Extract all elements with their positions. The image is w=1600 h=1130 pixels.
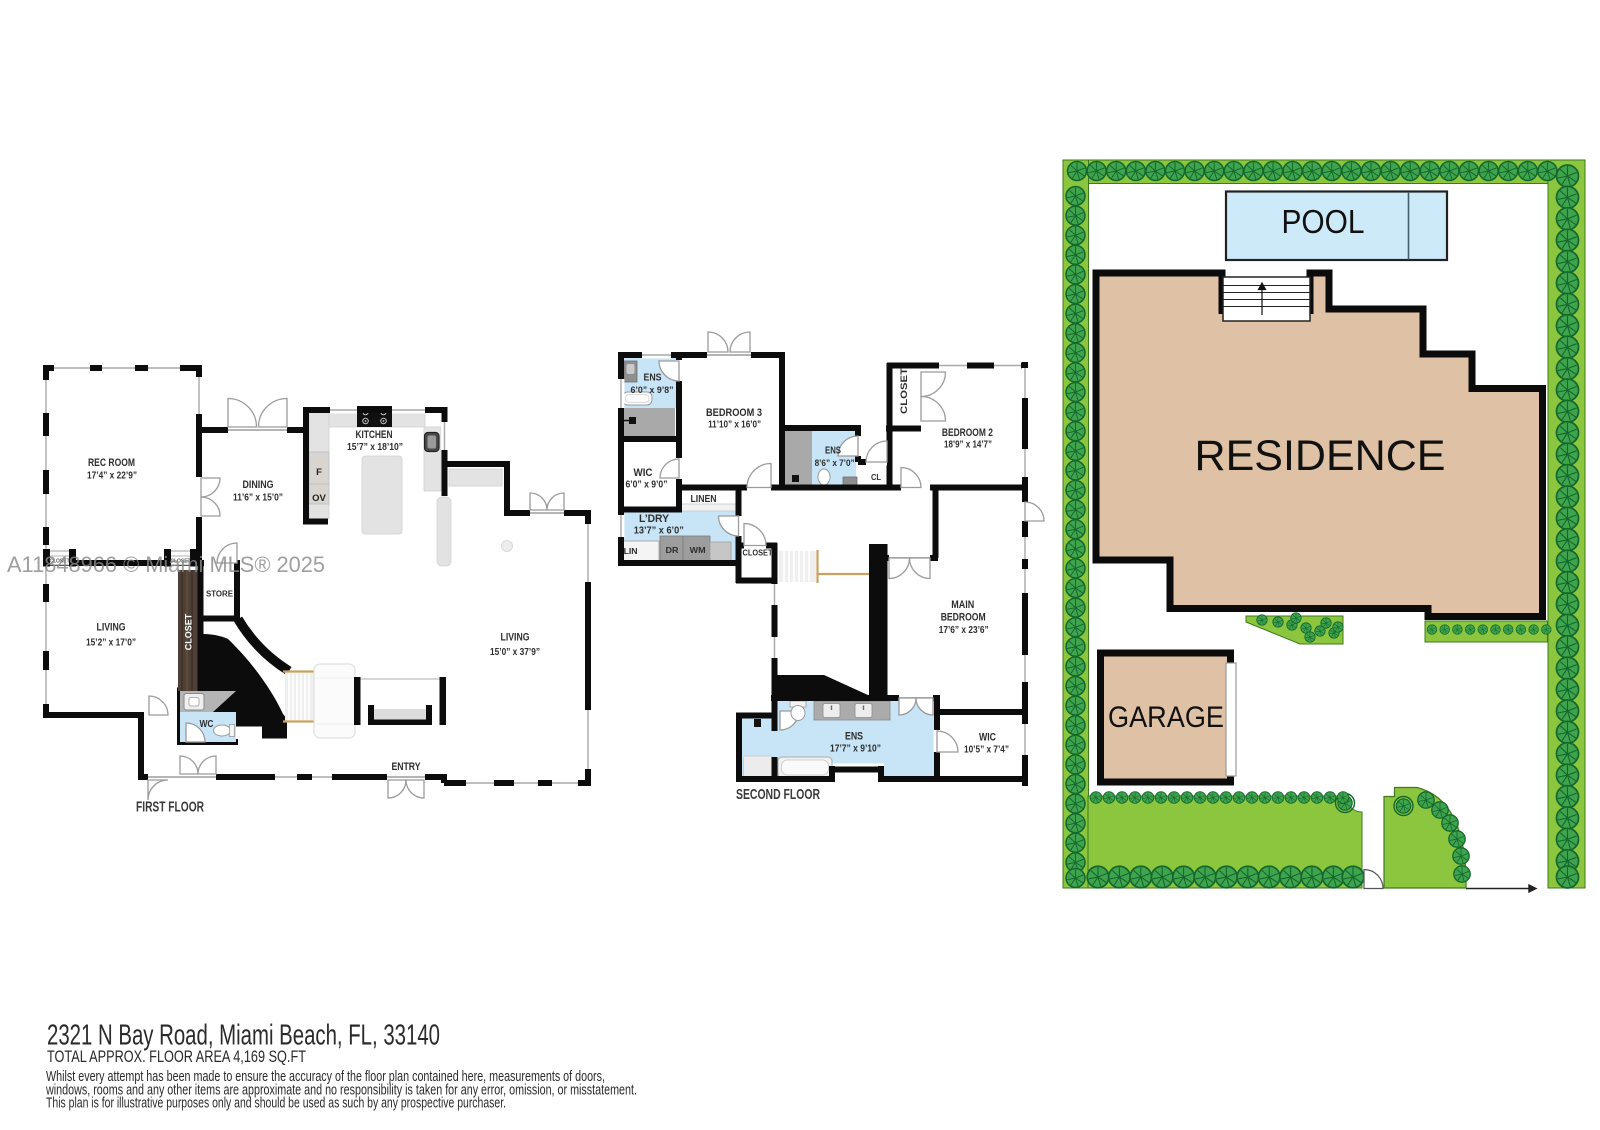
svg-text:DR: DR (666, 545, 679, 555)
svg-text:BEDROOM 2: BEDROOM 2 (942, 427, 993, 439)
svg-text:GARAGE: GARAGE (1108, 701, 1224, 734)
svg-text:WIC: WIC (979, 732, 996, 744)
svg-text:ENS: ENS (845, 731, 863, 743)
svg-text:F: F (316, 467, 322, 478)
svg-text:FIRST FLOOR: FIRST FLOOR (136, 799, 204, 816)
svg-text:15’7” x 18’10”: 15’7” x 18’10” (347, 442, 403, 453)
svg-text:13’7” x 6’0”: 13’7” x 6’0” (634, 526, 684, 537)
svg-text:WIC: WIC (634, 467, 653, 479)
svg-text:LIVING: LIVING (97, 622, 126, 634)
svg-text:11’6” x 15’0”: 11’6” x 15’0” (233, 493, 283, 504)
svg-text:TOTAL APPROX. FLOOR AREA 4,169: TOTAL APPROX. FLOOR AREA 4,169 SQ.FT (47, 1047, 306, 1066)
svg-text:8’6” x 7’0”: 8’6” x 7’0” (815, 458, 855, 469)
svg-text:CL: CL (871, 472, 881, 482)
svg-text:BEDROOM: BEDROOM (941, 612, 986, 624)
svg-text:17’4” x 22’9”: 17’4” x 22’9” (87, 471, 137, 482)
svg-text:6’0” x 9’8”: 6’0” x 9’8” (631, 385, 674, 396)
svg-text:REC ROOM: REC ROOM (88, 457, 135, 469)
svg-text:CLOSET: CLOSET (184, 613, 194, 650)
svg-text:15’0” x 37’9”: 15’0” x 37’9” (490, 647, 540, 658)
svg-text:This plan is for illustrative: This plan is for illustrative purposes o… (46, 1096, 506, 1112)
svg-text:17’6” x 23’6”: 17’6” x 23’6” (939, 625, 989, 636)
svg-text:DINING: DINING (243, 479, 274, 491)
svg-text:10’5” x 7’4”: 10’5” x 7’4” (964, 745, 1009, 756)
svg-text:11’10” x 16’0”: 11’10” x 16’0” (708, 420, 761, 431)
svg-text:SECOND FLOOR: SECOND FLOOR (736, 786, 820, 803)
svg-text:MAIN: MAIN (951, 599, 974, 611)
svg-text:WC: WC (200, 718, 214, 730)
svg-text:18’9” x 14’7”: 18’9” x 14’7” (944, 440, 992, 451)
svg-text:OV: OV (312, 493, 326, 504)
svg-text:RESIDENCE: RESIDENCE (1195, 432, 1446, 480)
svg-text:ENS: ENS (644, 373, 662, 384)
svg-text:POOL: POOL (1282, 203, 1365, 240)
svg-text:CLOSET: CLOSET (899, 368, 910, 414)
svg-text:15’2” x 17’0”: 15’2” x 17’0” (86, 638, 136, 649)
svg-text:WM: WM (690, 545, 706, 555)
svg-text:ENS: ENS (825, 446, 841, 457)
svg-text:STORE: STORE (206, 589, 233, 599)
svg-text:CLOSET: CLOSET (743, 548, 773, 558)
svg-text:L’DRY: L’DRY (639, 513, 670, 525)
svg-text:LIVING: LIVING (501, 632, 530, 644)
svg-text:ENTRY: ENTRY (392, 761, 422, 773)
svg-text:A11848966 © Miami MLS® 2025: A11848966 © Miami MLS® 2025 (7, 552, 325, 577)
svg-text:17’7” x 9’10”: 17’7” x 9’10” (830, 744, 881, 755)
svg-text:6’0” x 9’0”: 6’0” x 9’0” (626, 480, 668, 491)
svg-text:LIN: LIN (624, 546, 638, 556)
svg-text:LINEN: LINEN (691, 494, 717, 505)
svg-text:KITCHEN: KITCHEN (356, 429, 393, 441)
svg-text:BEDROOM 3: BEDROOM 3 (706, 407, 762, 419)
